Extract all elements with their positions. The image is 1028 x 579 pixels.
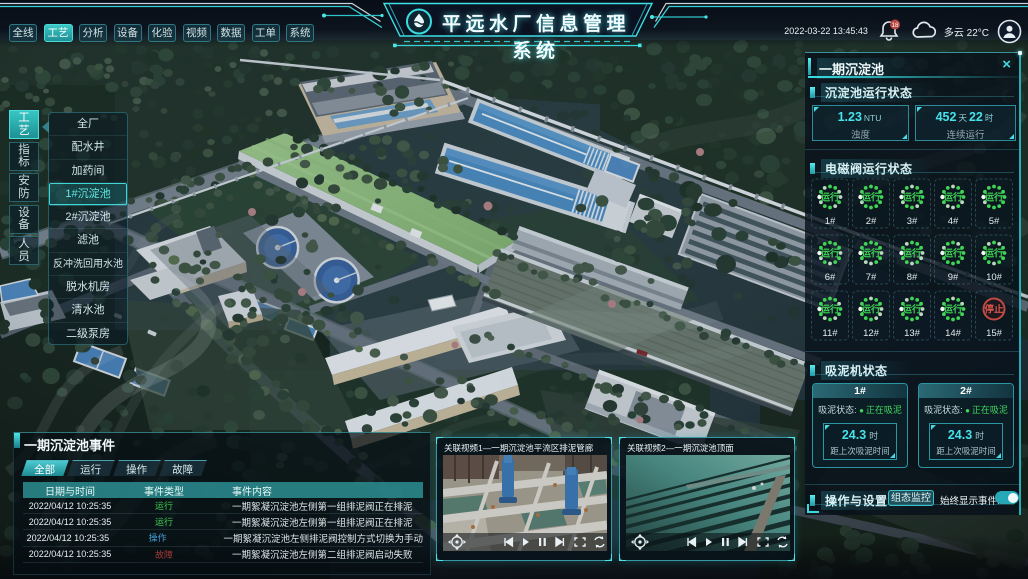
svg-text:运行: 运行: [861, 304, 881, 316]
svg-text:停止: 停止: [984, 304, 1004, 316]
svg-text:18: 18: [891, 22, 899, 29]
svg-text:运行: 运行: [984, 248, 1004, 260]
svg-text:运行: 运行: [861, 192, 881, 204]
svg-text:运行: 运行: [943, 304, 963, 316]
svg-text:1#: 1#: [825, 216, 836, 227]
svg-text:8#: 8#: [907, 272, 918, 283]
svg-text:7#: 7#: [866, 272, 877, 283]
svg-text:运行: 运行: [943, 192, 963, 204]
svg-text:13#: 13#: [904, 328, 921, 339]
svg-text:运行: 运行: [943, 248, 963, 260]
svg-text:12#: 12#: [863, 328, 880, 339]
svg-text:5#: 5#: [989, 216, 1000, 227]
svg-text:运行: 运行: [902, 248, 922, 260]
svg-text:3#: 3#: [907, 216, 918, 227]
svg-text:运行: 运行: [902, 304, 922, 316]
svg-text:14#: 14#: [945, 328, 962, 339]
svg-text:2#: 2#: [866, 216, 877, 227]
svg-text:4#: 4#: [948, 216, 959, 227]
svg-text:运行: 运行: [984, 192, 1004, 204]
svg-text:运行: 运行: [820, 304, 840, 316]
svg-text:运行: 运行: [820, 192, 840, 204]
svg-text:运行: 运行: [861, 248, 881, 260]
svg-text:11#: 11#: [822, 328, 838, 339]
svg-text:运行: 运行: [820, 248, 840, 260]
svg-text:9#: 9#: [948, 272, 959, 283]
svg-text:15#: 15#: [986, 328, 1003, 339]
svg-text:6#: 6#: [825, 272, 836, 283]
svg-text:运行: 运行: [902, 192, 922, 204]
svg-text:10#: 10#: [986, 272, 1003, 283]
